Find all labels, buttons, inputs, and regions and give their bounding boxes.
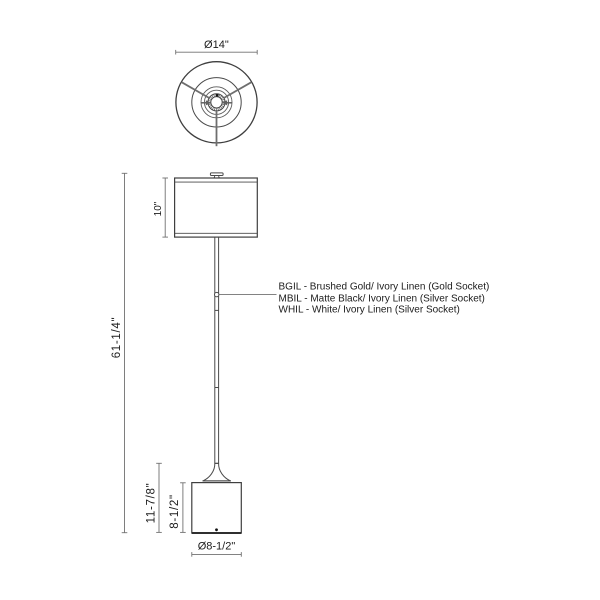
- svg-text:8-1/2": 8-1/2": [169, 494, 181, 529]
- svg-text:61-1/4": 61-1/4": [111, 317, 123, 359]
- svg-text:MBIL - Matte Black/ Ivory Line: MBIL - Matte Black/ Ivory Linen (Silver …: [279, 293, 485, 304]
- svg-text:Ø14": Ø14": [204, 39, 229, 51]
- svg-text:BGIL - Brushed Gold/ Ivory Lin: BGIL - Brushed Gold/ Ivory Linen (Gold S…: [279, 282, 490, 293]
- svg-text:11-7/8": 11-7/8": [145, 483, 157, 524]
- svg-text:Ø8-1/2": Ø8-1/2": [198, 541, 236, 553]
- svg-text:10": 10": [153, 201, 164, 216]
- svg-text:WHIL - White/ Ivory Linen (Sil: WHIL - White/ Ivory Linen (Silver Socket…: [279, 305, 460, 316]
